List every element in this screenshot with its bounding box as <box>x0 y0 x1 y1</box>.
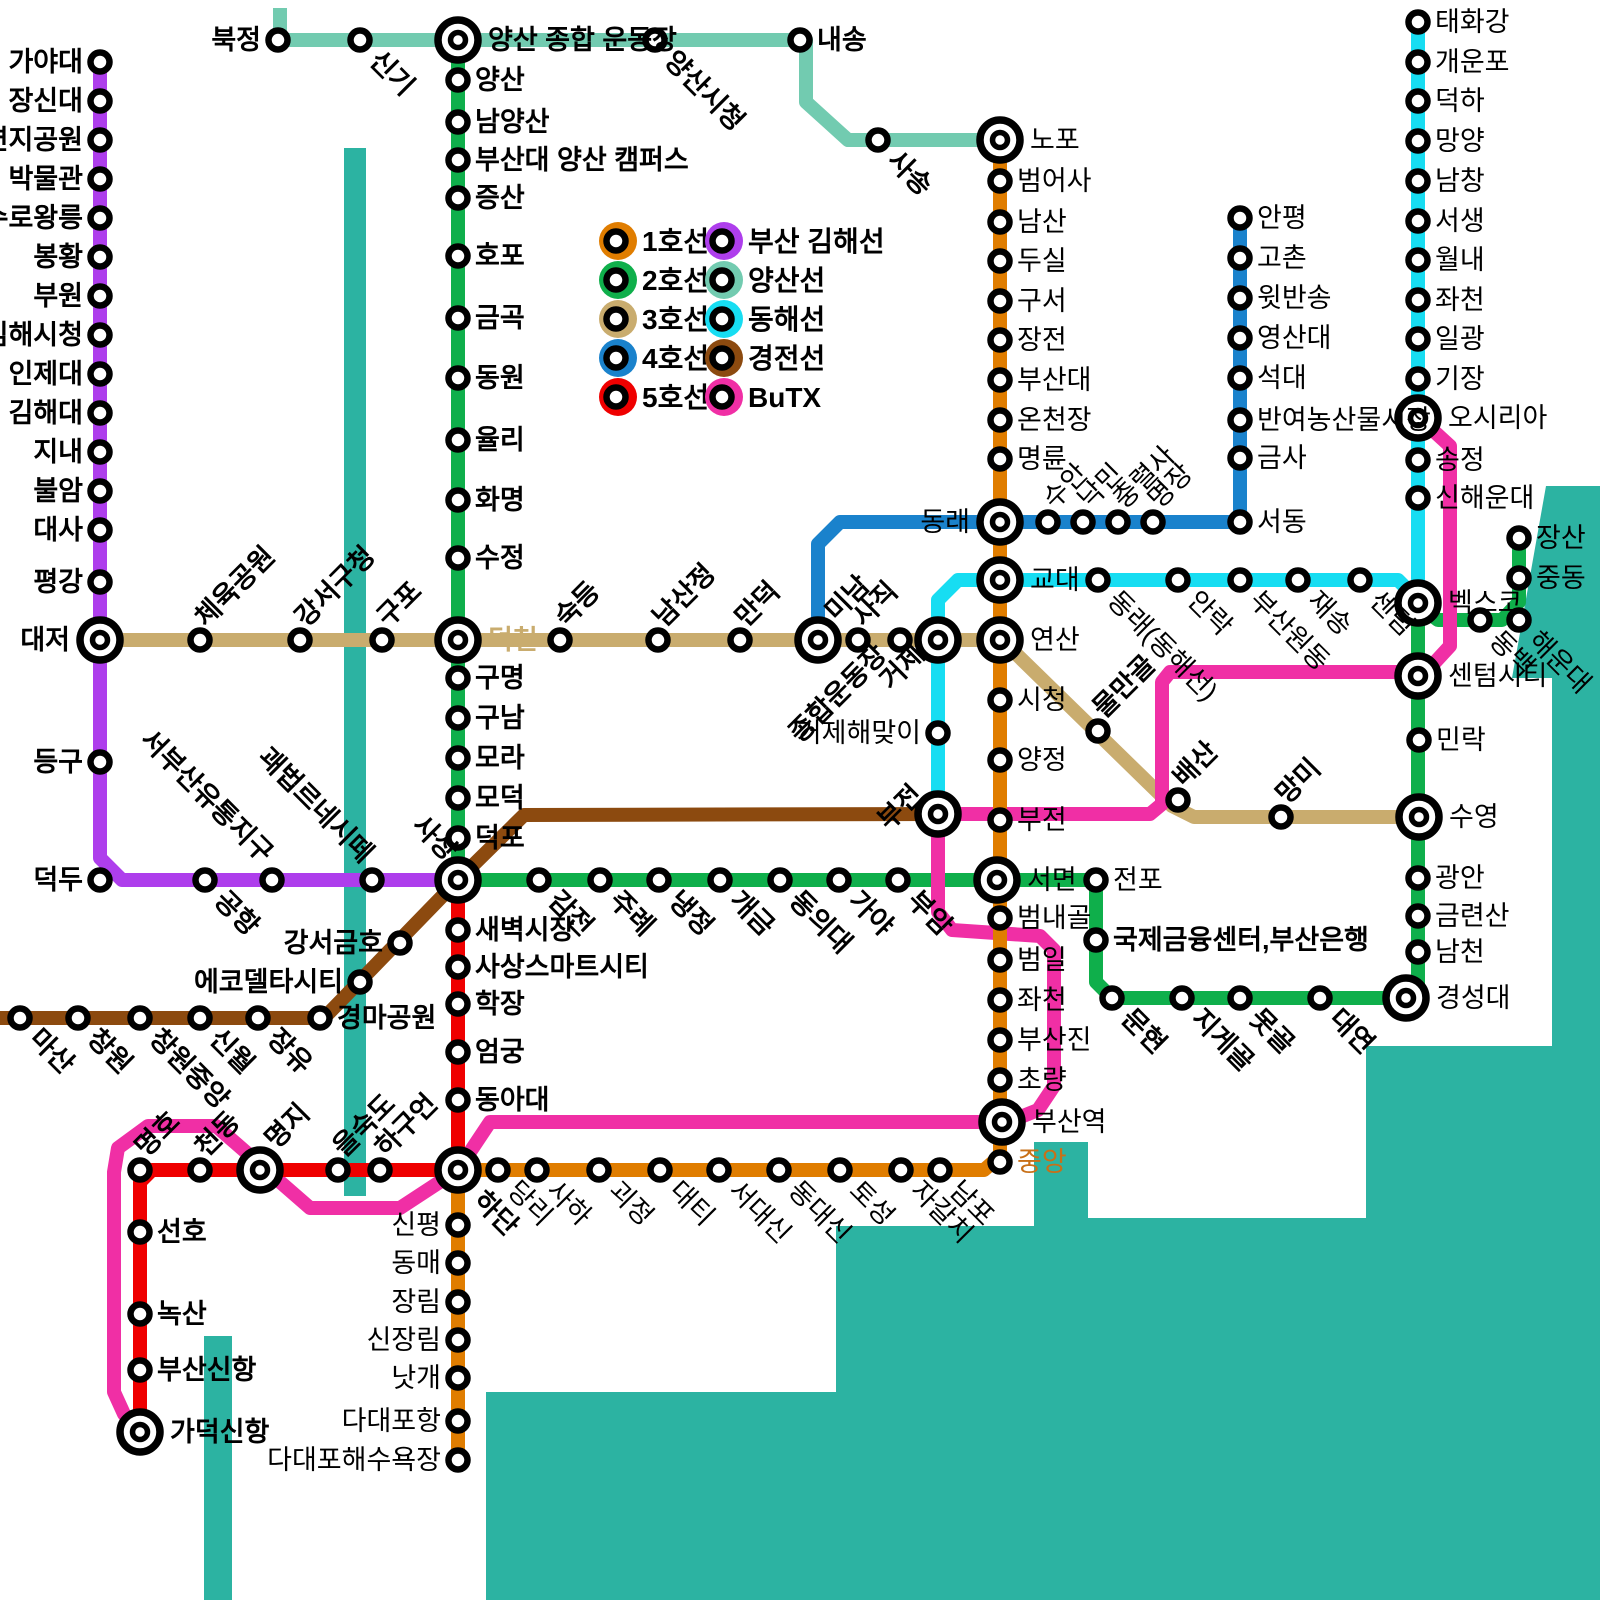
station-marker <box>449 151 468 170</box>
station-괘법르네시떼 <box>363 871 382 890</box>
station-부산원동 <box>1231 571 1250 590</box>
station-label-지게골: 지게골 <box>1186 1003 1260 1077</box>
station-모라 <box>449 749 468 768</box>
station-부암 <box>889 871 908 890</box>
station-label-대티: 대티 <box>664 1175 720 1231</box>
station-지내 <box>91 443 110 462</box>
station-marker <box>771 871 790 890</box>
station-label-금련산: 금련산 <box>1435 901 1510 931</box>
station-marker <box>711 871 730 890</box>
station-marker <box>1087 871 1106 890</box>
station-marker <box>1409 907 1428 926</box>
station-동의대 <box>771 871 790 890</box>
station-marker <box>889 871 908 890</box>
station-marker <box>830 871 849 890</box>
station-망미 <box>1272 808 1291 827</box>
station-등구 <box>91 753 110 772</box>
legend-station-icon <box>713 232 732 251</box>
station-label-석대: 석대 <box>1257 363 1307 393</box>
station-대저 <box>80 620 120 660</box>
interchange-marker-inner <box>995 1115 1010 1130</box>
station-marker <box>1409 172 1428 191</box>
station-marker <box>1169 791 1188 810</box>
station-신평 <box>449 1216 468 1235</box>
station-label-에코델타시티: 에코델타시티 <box>194 967 343 997</box>
station-양산 종합 운동장 <box>438 20 478 60</box>
station-경마공원 <box>311 1009 330 1028</box>
station-label-녹산: 녹산 <box>157 1299 207 1329</box>
station-감전 <box>530 871 549 890</box>
station-광안 <box>1409 869 1428 888</box>
station-센텀 <box>1351 571 1370 590</box>
station-label-안락: 안락 <box>1182 585 1238 641</box>
station-label-개금: 개금 <box>724 885 780 941</box>
station-marker <box>1089 571 1108 590</box>
legend-station-icon <box>713 310 732 329</box>
station-가야대 <box>91 53 110 72</box>
station-좌천 <box>991 991 1010 1010</box>
station-label-경성대: 경성대 <box>1436 983 1511 1013</box>
station-label-교대: 교대 <box>1030 565 1080 595</box>
station-marker <box>449 369 468 388</box>
legend-item-동해선: 동해선 <box>705 300 825 338</box>
station-label-안평: 안평 <box>1257 203 1307 233</box>
legend-item-2호선: 2호선 <box>599 261 709 299</box>
station-양정 <box>991 751 1010 770</box>
station-label-남산정: 남산정 <box>647 558 721 632</box>
station-석대 <box>1231 369 1250 388</box>
station-marker <box>91 53 110 72</box>
interchange-marker-inner <box>993 573 1008 588</box>
station-marker <box>449 789 468 808</box>
station-marker <box>91 871 110 890</box>
station-국제금융센터,부산은행 <box>1087 931 1106 950</box>
legend-label: BuTX <box>748 382 821 413</box>
station-금련산 <box>1409 907 1428 926</box>
legend-station-icon <box>713 271 732 290</box>
station-marker <box>351 31 370 50</box>
station-label-양산 종합 운동장: 양산 종합 운동장 <box>488 25 677 55</box>
station-marker <box>449 921 468 940</box>
station-marker <box>1231 513 1250 532</box>
station-label-신해운대: 신해운대 <box>1435 483 1534 513</box>
interchange-marker-inner <box>451 1163 466 1178</box>
station-marker <box>131 1161 150 1180</box>
station-label-불암: 불암 <box>33 476 83 506</box>
station-label-구남: 구남 <box>475 703 525 733</box>
station-marker <box>1409 869 1428 888</box>
station-신월 <box>191 1009 210 1028</box>
station-label-송정: 송정 <box>1435 445 1485 475</box>
station-범내골 <box>991 909 1010 928</box>
legend-station-icon <box>607 388 626 407</box>
station-냉정 <box>650 871 669 890</box>
station-label-학장: 학장 <box>475 989 525 1019</box>
station-label-두실: 두실 <box>1017 246 1067 276</box>
station-marker <box>91 753 110 772</box>
station-동래(동해선) <box>1089 571 1108 590</box>
station-수영 <box>1399 797 1439 837</box>
station-연지공원 <box>91 131 110 150</box>
station-label-명호: 명호 <box>129 1106 185 1162</box>
station-창원중앙 <box>131 1009 150 1028</box>
station-marker <box>1103 989 1122 1008</box>
station-marker <box>1231 209 1250 228</box>
station-label-가야대: 가야대 <box>8 47 83 77</box>
station-marker <box>831 1161 850 1180</box>
station-marker <box>1409 53 1428 72</box>
station-토성 <box>831 1161 850 1180</box>
interchange-marker-inner <box>990 873 1005 888</box>
station-marker <box>449 709 468 728</box>
station-label-덕포: 덕포 <box>475 823 525 853</box>
station-민락 <box>1410 731 1429 750</box>
station-label-구명: 구명 <box>475 663 525 693</box>
station-동매 <box>449 1254 468 1273</box>
station-시청 <box>991 691 1010 710</box>
interchange-marker-inner <box>253 1163 268 1178</box>
station-구남 <box>449 709 468 728</box>
station-marker <box>991 751 1010 770</box>
station-marker <box>1272 808 1291 827</box>
station-수정 <box>449 549 468 568</box>
station-label-신기: 신기 <box>364 45 420 101</box>
station-marker <box>131 1305 150 1324</box>
station-marker <box>131 1223 150 1242</box>
station-label-구서: 구서 <box>1017 286 1067 316</box>
station-label-금곡: 금곡 <box>475 303 525 333</box>
interchange-marker-inner <box>1411 669 1426 684</box>
station-에코델타시티 <box>351 973 370 992</box>
station-marker <box>449 1293 468 1312</box>
station-윗반송 <box>1231 289 1250 308</box>
station-동대신 <box>770 1161 789 1180</box>
station-label-천동: 천동 <box>189 1106 245 1162</box>
station-엄궁 <box>449 1043 468 1062</box>
station-label-가덕신항: 가덕신항 <box>170 1417 270 1447</box>
station-marker <box>11 1009 30 1028</box>
station-marker <box>91 131 110 150</box>
station-대티 <box>651 1161 670 1180</box>
station-박물관 <box>91 170 110 189</box>
station-label-괴정: 괴정 <box>603 1175 659 1231</box>
station-label-체육공원: 체육공원 <box>189 541 280 632</box>
station-label-국제금융센터,부산은행: 국제금융센터,부산은행 <box>1113 925 1369 955</box>
station-marker <box>449 749 468 768</box>
station-marker <box>1231 411 1250 430</box>
station-marker <box>991 213 1010 232</box>
station-marker <box>1409 251 1428 270</box>
station-marker <box>991 991 1010 1010</box>
station-marker <box>1231 449 1250 468</box>
station-marker <box>1409 330 1428 349</box>
station-label-양산시청: 양산시청 <box>659 45 750 136</box>
station-서동 <box>1231 513 1250 532</box>
station-label-수로왕릉: 수로왕릉 <box>0 203 83 233</box>
station-label-덕두: 덕두 <box>33 865 83 895</box>
station-label-남산: 남산 <box>1017 207 1067 237</box>
station-label-남천: 남천 <box>1435 937 1485 967</box>
station-marker <box>351 973 370 992</box>
station-초량 <box>991 1071 1010 1090</box>
station-label-덕하: 덕하 <box>1435 86 1485 116</box>
station-태화강 <box>1409 13 1428 32</box>
station-label-김해시청: 김해시청 <box>0 320 83 350</box>
station-가야 <box>830 871 849 890</box>
station-label-부산신항: 부산신항 <box>157 1355 257 1385</box>
station-label-다대포해수욕장: 다대포해수욕장 <box>267 1445 441 1475</box>
legend-label: 4호선 <box>642 343 709 374</box>
station-label-내송: 내송 <box>817 25 867 55</box>
station-marker <box>869 131 888 150</box>
station-체육공원 <box>191 631 210 650</box>
station-label-연지공원: 연지공원 <box>0 125 83 155</box>
station-기장 <box>1409 370 1428 389</box>
station-marker <box>263 871 282 890</box>
station-marker <box>373 631 392 650</box>
station-대연 <box>1311 989 1330 1008</box>
station-marker <box>449 1412 468 1431</box>
station-label-윗반송: 윗반송 <box>1257 283 1332 313</box>
station-marker <box>1311 989 1330 1008</box>
station-장림 <box>449 1293 468 1312</box>
station-망양 <box>1409 132 1428 151</box>
legend-label: 동해선 <box>748 304 825 335</box>
station-label-범일: 범일 <box>1017 945 1067 975</box>
station-label-배산: 배산 <box>1167 736 1223 792</box>
station-marker <box>1409 489 1428 508</box>
station-서생 <box>1409 212 1428 231</box>
station-marker <box>991 691 1010 710</box>
station-label-선호: 선호 <box>157 1217 207 1247</box>
station-물만골 <box>1089 722 1108 741</box>
station-동원 <box>449 369 468 388</box>
station-marker <box>650 871 669 890</box>
station-덕두 <box>91 871 110 890</box>
interchange-marker-inner <box>93 633 108 648</box>
station-남포 <box>931 1161 950 1180</box>
legend-item-1호선: 1호선 <box>599 222 709 260</box>
station-marker <box>991 1071 1010 1090</box>
station-label-동아대: 동아대 <box>475 1085 550 1115</box>
station-label-수정: 수정 <box>475 543 525 573</box>
station-부산역 <box>982 1102 1022 1142</box>
legend-item-5호선: 5호선 <box>599 378 709 416</box>
station-marker <box>1089 722 1108 741</box>
station-label-지내: 지내 <box>33 437 83 467</box>
legend-station-icon <box>607 349 626 368</box>
station-marker <box>91 326 110 345</box>
station-marker <box>91 443 110 462</box>
station-marker <box>191 1009 210 1028</box>
station-marker <box>1409 92 1428 111</box>
station-label-월내: 월내 <box>1435 245 1485 275</box>
station-label-엄궁: 엄궁 <box>475 1037 525 1067</box>
station-label-만덕: 만덕 <box>729 576 785 632</box>
station-marker <box>1510 569 1529 588</box>
station-label-중동: 중동 <box>1536 563 1586 593</box>
station-일광 <box>1409 330 1428 349</box>
station-label-봉황: 봉황 <box>33 242 83 272</box>
station-label-온천장: 온천장 <box>1017 405 1092 435</box>
station-marker <box>1231 571 1250 590</box>
station-label-남양산: 남양산 <box>475 107 550 137</box>
station-label-다대포항: 다대포항 <box>342 1406 441 1436</box>
station-다대포해수욕장 <box>449 1451 468 1470</box>
station-label-고촌: 고촌 <box>1257 243 1307 273</box>
station-marker <box>590 1161 609 1180</box>
station-marker <box>91 209 110 228</box>
station-고촌 <box>1231 249 1250 268</box>
station-marker <box>91 365 110 384</box>
station-개운포 <box>1409 53 1428 72</box>
station-label-박물관: 박물관 <box>8 164 83 194</box>
station-marker <box>991 1031 1010 1050</box>
station-지게골 <box>1173 989 1192 1008</box>
station-label-금사: 금사 <box>1257 443 1307 473</box>
station-marker <box>1231 989 1250 1008</box>
station-금사 <box>1231 449 1250 468</box>
station-marker <box>311 1009 330 1028</box>
station-재송 <box>1289 571 1308 590</box>
station-명륜 <box>991 450 1010 469</box>
station-숙등 <box>551 631 570 650</box>
station-label-태화강: 태화강 <box>1435 7 1510 37</box>
station-marker <box>931 1161 950 1180</box>
station-창원 <box>69 1009 88 1028</box>
station-marker <box>929 724 948 743</box>
station-label-장림: 장림 <box>391 1287 441 1317</box>
station-송정 <box>1409 451 1428 470</box>
legend-station-icon <box>607 271 626 290</box>
station-남천 <box>1409 943 1428 962</box>
station-marker <box>69 1009 88 1028</box>
station-label-벡스코: 벡스코 <box>1448 588 1523 618</box>
station-label-김해대: 김해대 <box>8 398 83 428</box>
station-모덕 <box>449 789 468 808</box>
station-강서구청 <box>291 631 310 650</box>
station-marker <box>449 113 468 132</box>
station-marker <box>449 189 468 208</box>
station-label-남창: 남창 <box>1435 166 1485 196</box>
station-label-명륜: 명륜 <box>1017 444 1067 474</box>
station-marker <box>131 1009 150 1028</box>
station-marker <box>770 1161 789 1180</box>
station-marker <box>291 631 310 650</box>
legend-item-부산 김해선: 부산 김해선 <box>705 222 885 260</box>
station-marker <box>991 951 1010 970</box>
station-label-신장림: 신장림 <box>366 1325 441 1355</box>
station-두실 <box>991 252 1010 271</box>
interchange-marker-inner <box>1411 596 1426 611</box>
station-marker <box>991 172 1010 191</box>
station-label-시청: 시청 <box>1017 685 1067 715</box>
station-미남 <box>798 620 838 660</box>
station-label-동대신: 동대신 <box>783 1175 857 1249</box>
station-label-서생: 서생 <box>1435 206 1485 236</box>
station-센텀시티 <box>1398 656 1438 696</box>
station-영산대 <box>1231 329 1250 348</box>
busan-metro-map: 가야대장신대연지공원박물관수로왕릉봉황부원김해시청인제대김해대지내불암대사평강대… <box>0 0 1600 1600</box>
station-marker <box>1409 212 1428 231</box>
station-marker <box>991 1153 1010 1172</box>
station-marker <box>991 252 1010 271</box>
interchange-marker-inner <box>993 515 1008 530</box>
station-label-부원: 부원 <box>33 281 83 311</box>
station-marker <box>892 1161 911 1180</box>
station-marker <box>1409 943 1428 962</box>
interchange-marker-inner <box>133 1425 148 1440</box>
station-label-서면: 서면 <box>1027 865 1077 895</box>
station-marker <box>91 248 110 267</box>
station-label-망미: 망미 <box>1270 753 1326 809</box>
interchange-marker-inner <box>931 807 946 822</box>
station-marker <box>269 31 288 50</box>
station-label-대저: 대저 <box>20 625 70 655</box>
station-marker <box>1289 571 1308 590</box>
legend-label: 경전선 <box>748 343 825 374</box>
station-label-범내골: 범내골 <box>1017 903 1092 933</box>
station-녹산 <box>131 1305 150 1324</box>
station-marker <box>991 811 1010 830</box>
station-marker <box>489 1161 508 1180</box>
station-범일 <box>991 951 1010 970</box>
station-marker <box>449 71 468 90</box>
station-사상스마트시티 <box>449 958 468 977</box>
station-공항 <box>196 871 215 890</box>
station-marker <box>1410 731 1429 750</box>
station-사송 <box>869 131 888 150</box>
station-label-영산대: 영산대 <box>1257 323 1332 353</box>
station-하구언 <box>371 1161 390 1180</box>
station-label-양정: 양정 <box>1017 745 1067 775</box>
station-좌천 <box>1409 291 1428 310</box>
station-배산 <box>1169 791 1188 810</box>
legend-item-3호선: 3호선 <box>599 300 709 338</box>
station-marker <box>329 1161 348 1180</box>
station-marker <box>1144 513 1163 532</box>
station-내송 <box>791 31 810 50</box>
station-당리 <box>489 1161 508 1180</box>
station-label-동의대: 동의대 <box>784 885 858 959</box>
station-label-평강: 평강 <box>33 567 83 597</box>
station-label-동매: 동매 <box>391 1248 441 1278</box>
station-가덕신항 <box>120 1412 160 1452</box>
station-장전 <box>991 331 1010 350</box>
station-marker <box>363 871 382 890</box>
legend: 1호선2호선3호선4호선5호선부산 김해선양산선동해선경전선BuTX <box>599 222 885 416</box>
station-marker <box>991 450 1010 469</box>
station-남창 <box>1409 172 1428 191</box>
legend-label: 5호선 <box>642 382 709 413</box>
station-label-범어사: 범어사 <box>1017 166 1092 196</box>
station-불암 <box>91 482 110 501</box>
station-서부산유통지구 <box>263 871 282 890</box>
legend-item-양산선: 양산선 <box>705 261 825 299</box>
station-marker <box>1231 249 1250 268</box>
legend-station-icon <box>713 388 732 407</box>
station-월내 <box>1409 251 1428 270</box>
station-marker <box>449 1369 468 1388</box>
station-marker <box>1039 513 1058 532</box>
interchange-marker-inner <box>993 633 1008 648</box>
legend-item-BuTX: BuTX <box>705 378 821 416</box>
station-marker <box>1109 513 1128 532</box>
station-label-강서금호: 강서금호 <box>284 928 383 958</box>
interchange-marker-inner <box>451 633 466 648</box>
station-안락 <box>1169 571 1188 590</box>
station-marker <box>1173 989 1192 1008</box>
